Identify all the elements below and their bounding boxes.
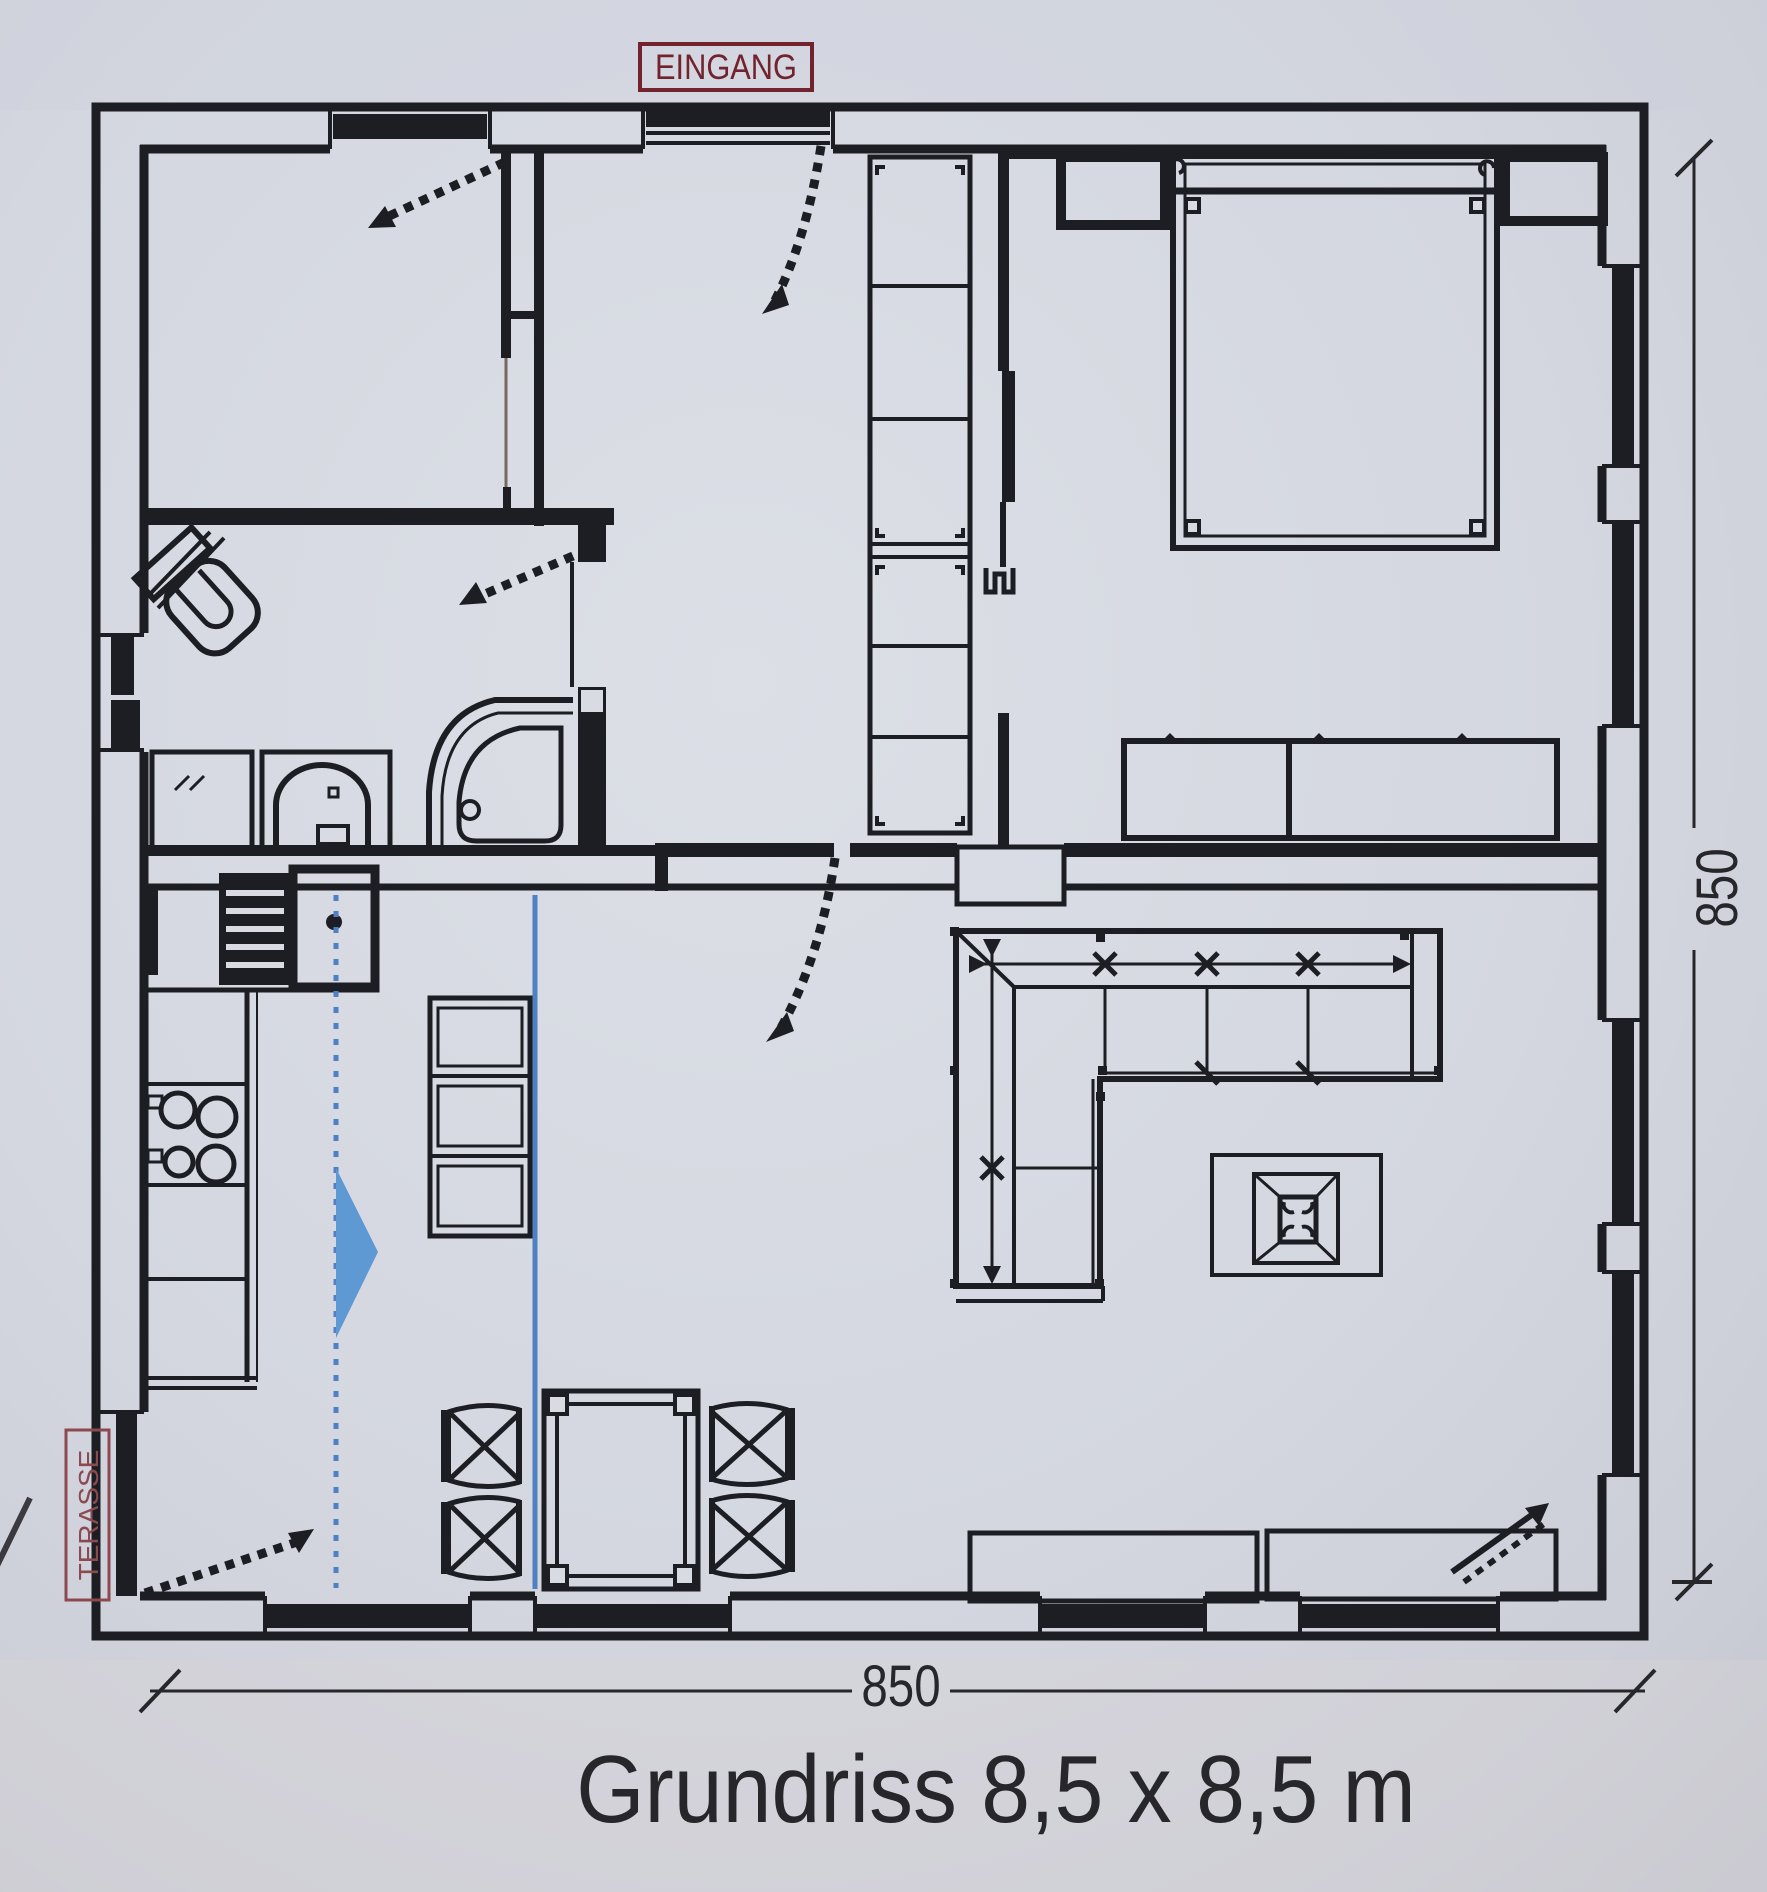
svg-text:EINGANG: EINGANG (655, 47, 797, 86)
svg-text:850: 850 (861, 1655, 940, 1720)
svg-text:TERASSE: TERASSE (73, 1450, 104, 1581)
svg-text:850: 850 (1686, 848, 1751, 927)
svg-text:Grundriss 8,5 x 8,5 m: Grundriss 8,5 x 8,5 m (576, 1736, 1416, 1842)
